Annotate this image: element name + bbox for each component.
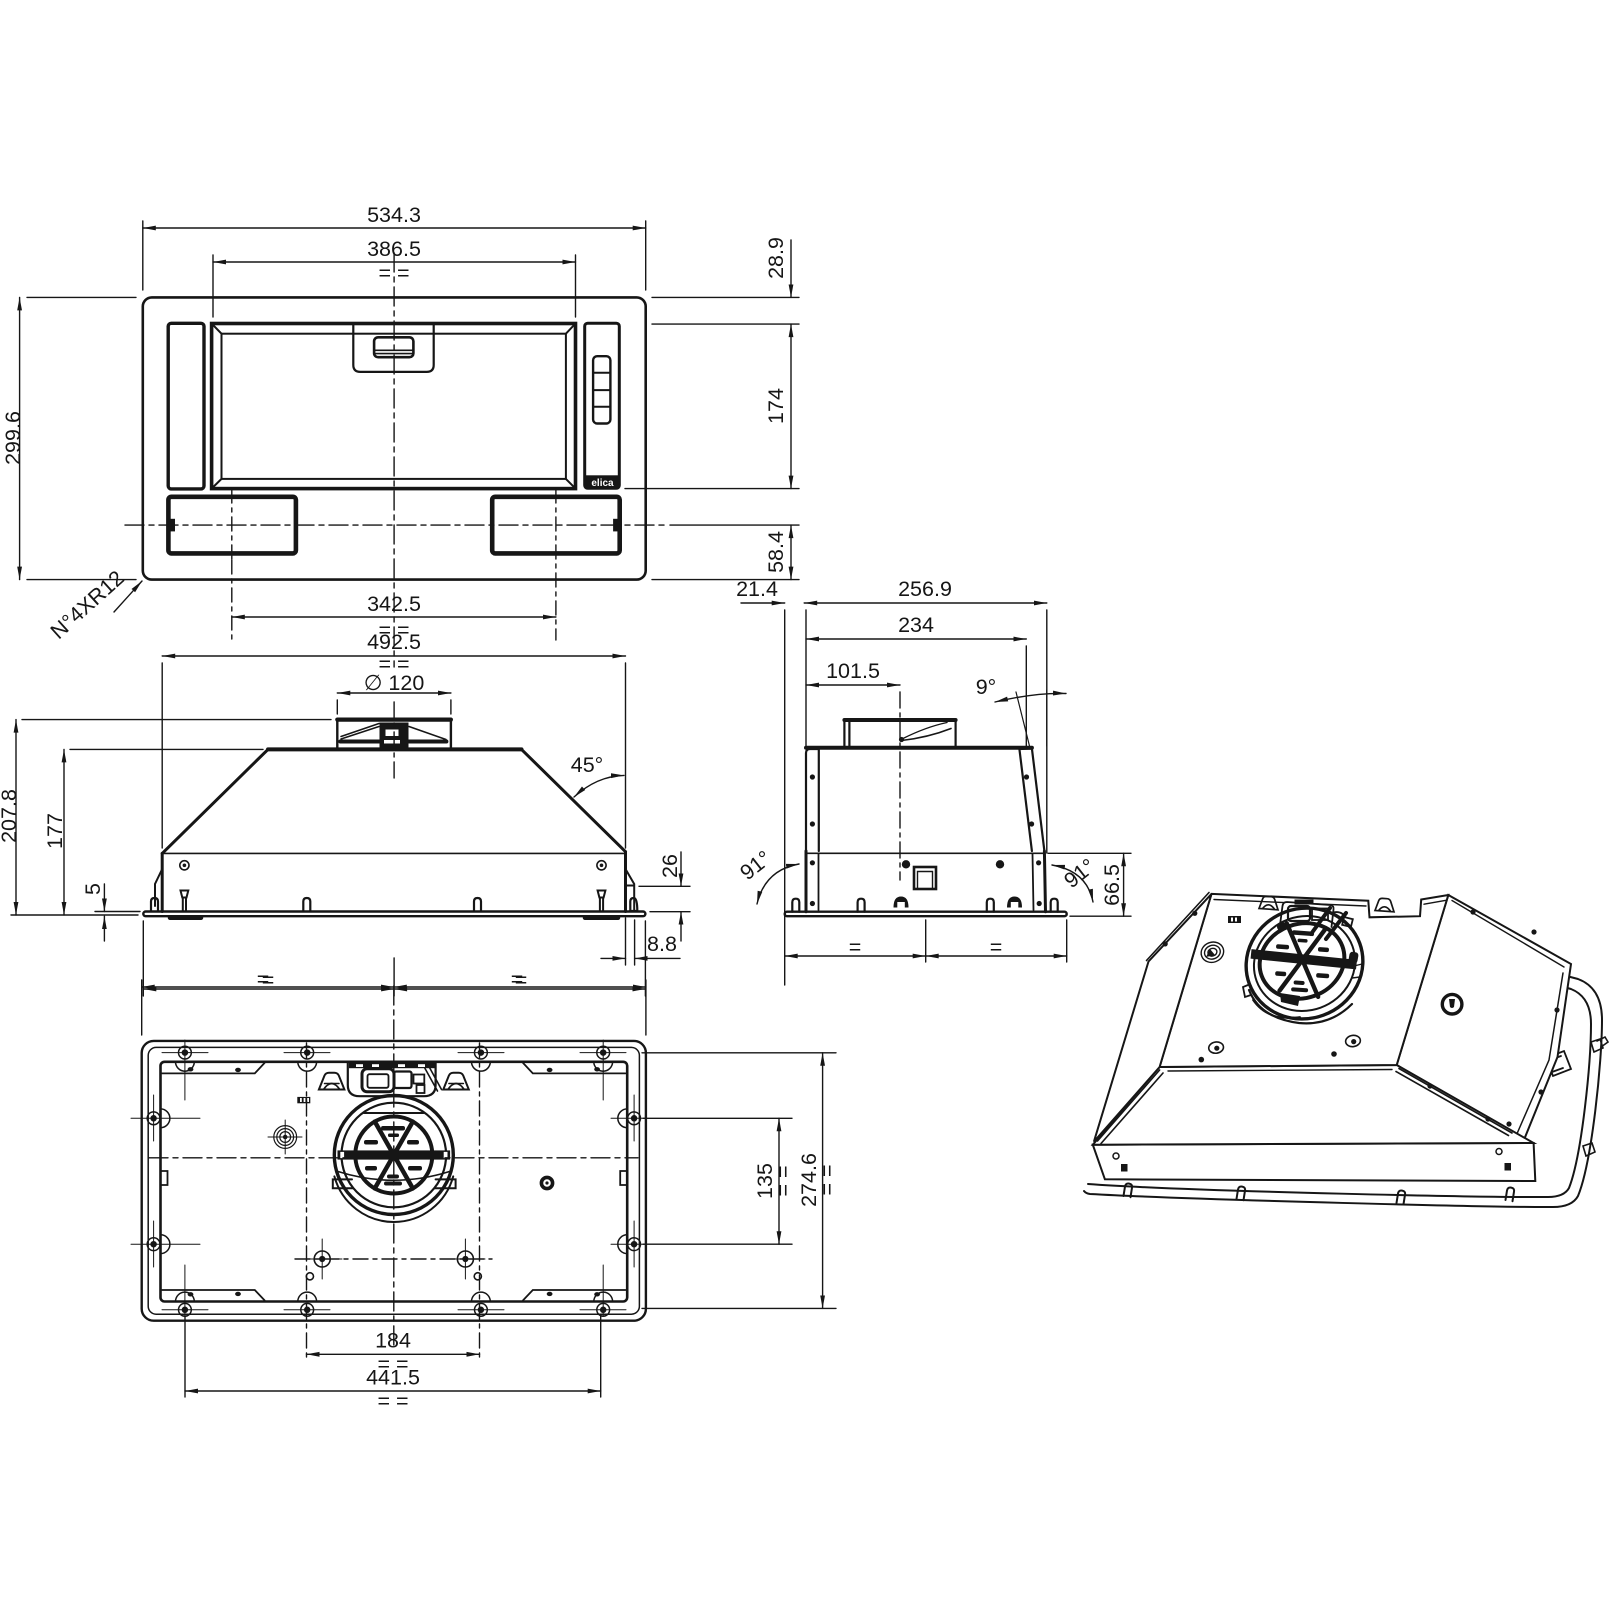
- svg-text:21.4: 21.4: [736, 577, 778, 601]
- svg-text:534.3: 534.3: [367, 203, 421, 227]
- svg-text:=: =: [990, 935, 1003, 959]
- svg-text:N°4XR12: N°4XR12: [46, 566, 129, 644]
- svg-text:386.5: 386.5: [367, 237, 421, 261]
- svg-text:234: 234: [898, 613, 934, 637]
- svg-text:=: =: [511, 967, 524, 991]
- svg-text:342.5: 342.5: [367, 592, 421, 616]
- svg-text:= =: = =: [815, 1164, 839, 1195]
- svg-text:299.6: 299.6: [1, 411, 25, 465]
- svg-text:5: 5: [81, 883, 105, 895]
- svg-text:elica: elica: [591, 478, 614, 489]
- svg-text:91°: 91°: [1059, 854, 1099, 893]
- svg-text:66.5: 66.5: [1100, 864, 1124, 906]
- svg-text:=: =: [849, 935, 862, 959]
- svg-text:207.8: 207.8: [0, 789, 21, 843]
- svg-text:184: 184: [375, 1329, 411, 1353]
- svg-text:= =: = =: [378, 261, 409, 285]
- svg-text:492.5: 492.5: [367, 630, 421, 654]
- svg-text:45°: 45°: [571, 753, 604, 777]
- svg-text:256.9: 256.9: [898, 577, 952, 601]
- svg-text:8.8: 8.8: [647, 932, 677, 956]
- svg-text:101.5: 101.5: [826, 659, 880, 683]
- svg-text:441.5: 441.5: [366, 1366, 420, 1390]
- svg-text:28.9: 28.9: [764, 237, 788, 279]
- svg-text:174: 174: [764, 388, 788, 424]
- svg-text:= =: = =: [771, 1165, 795, 1196]
- svg-text:177: 177: [43, 813, 67, 849]
- svg-text:9°: 9°: [976, 675, 997, 699]
- svg-text:26: 26: [658, 854, 682, 878]
- svg-text:58.4: 58.4: [764, 531, 788, 573]
- svg-text:= =: = =: [377, 1389, 408, 1413]
- svg-text:=: =: [257, 967, 270, 991]
- svg-text:∅ 120: ∅ 120: [364, 671, 425, 695]
